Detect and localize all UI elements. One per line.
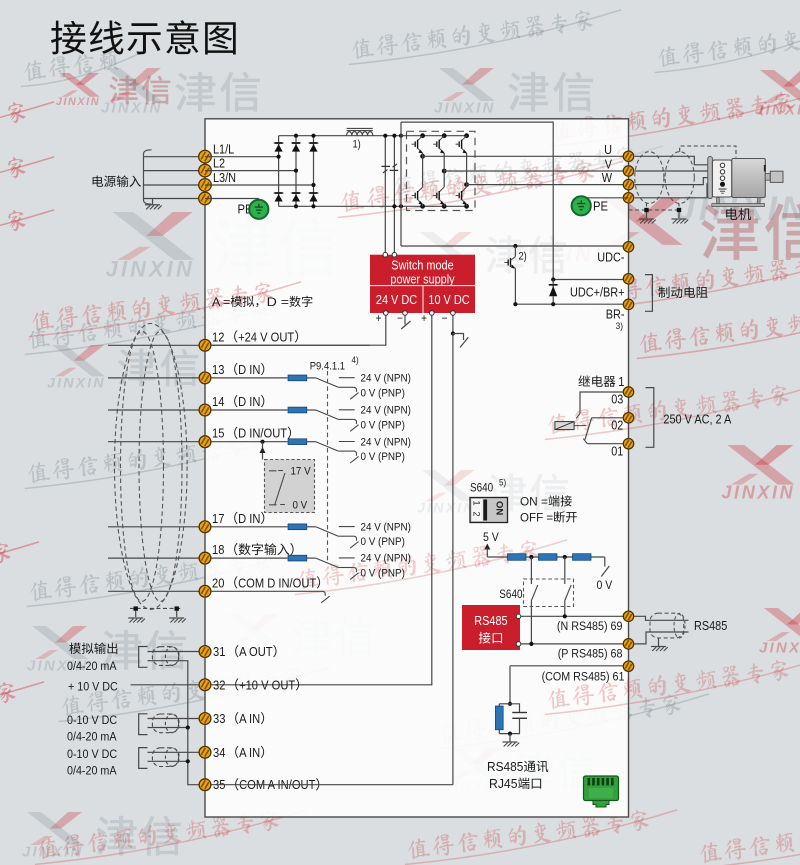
- svg-text:P9.4.1.1: P9.4.1.1: [310, 361, 345, 373]
- svg-text:12: 12: [212, 329, 224, 344]
- svg-text:0 V: 0 V: [293, 500, 308, 512]
- svg-text:A IN: A IN: [239, 745, 260, 760]
- svg-text:JINXIN: JINXIN: [759, 640, 800, 657]
- svg-text:U: U: [604, 143, 612, 157]
- svg-text:24 V (NPN): 24 V (NPN): [361, 373, 412, 385]
- svg-text:RS485: RS485: [474, 614, 507, 628]
- svg-text:D IN: D IN: [238, 394, 260, 409]
- svg-text:D =: D =: [267, 295, 289, 309]
- svg-text:31: 31: [213, 644, 225, 659]
- svg-text:−: −: [397, 312, 403, 325]
- svg-text:A =: A =: [212, 295, 230, 309]
- svg-text:0 V (PNP): 0 V (PNP): [361, 568, 406, 580]
- svg-text:32: 32: [213, 677, 225, 692]
- svg-text:13: 13: [212, 362, 224, 377]
- svg-text:24 V (NPN): 24 V (NPN): [361, 521, 412, 533]
- svg-text:(N RS485) 69: (N RS485) 69: [557, 619, 623, 633]
- svg-text:W: W: [602, 171, 612, 185]
- svg-text:0 V (PNP): 0 V (PNP): [361, 419, 406, 431]
- svg-text:PE: PE: [593, 198, 608, 213]
- svg-text:V: V: [605, 157, 613, 171]
- svg-text:BR-: BR-: [606, 308, 625, 322]
- svg-text:JINXIN: JINXIN: [417, 500, 475, 516]
- svg-text:03: 03: [611, 393, 623, 407]
- svg-text:(COM RS485) 61: (COM RS485) 61: [542, 670, 625, 684]
- svg-text:01: 01: [611, 444, 623, 458]
- svg-text:JINXIN: JINXIN: [101, 100, 163, 117]
- svg-text:0/4-20 mA: 0/4-20 mA: [67, 764, 117, 778]
- svg-text:1: 1: [618, 375, 624, 389]
- svg-text:15: 15: [212, 426, 224, 441]
- svg-text:1): 1): [353, 139, 361, 151]
- svg-text:ON =: ON =: [520, 495, 548, 509]
- svg-text:18: 18: [212, 542, 224, 557]
- svg-text:D IN/OUT: D IN/OUT: [238, 426, 287, 441]
- svg-text:5 V: 5 V: [483, 530, 500, 544]
- svg-text:+ 10 V DC: + 10 V DC: [68, 680, 118, 694]
- svg-text:+: +: [421, 312, 427, 325]
- svg-text:−: −: [442, 312, 448, 325]
- svg-text:ON: ON: [494, 501, 505, 515]
- svg-text:power supply: power supply: [390, 273, 455, 287]
- svg-text:0-10 V DC: 0-10 V DC: [67, 747, 117, 761]
- svg-text:250 V AC, 2 A: 250 V AC, 2 A: [663, 412, 731, 426]
- svg-text:UDC-: UDC-: [597, 251, 624, 265]
- svg-text:5): 5): [499, 478, 506, 488]
- svg-text:L2: L2: [213, 157, 225, 171]
- svg-text:34: 34: [213, 745, 225, 760]
- svg-text:JINXIN: JINXIN: [22, 844, 84, 861]
- svg-text:0 V: 0 V: [597, 578, 614, 592]
- svg-text:14: 14: [212, 394, 224, 409]
- svg-text:D IN: D IN: [238, 511, 260, 526]
- svg-text:JINXIN: JINXIN: [721, 482, 795, 502]
- svg-text:2): 2): [519, 251, 527, 263]
- svg-text:RS485: RS485: [487, 760, 523, 774]
- svg-text:+10 V OUT: +10 V OUT: [239, 677, 295, 692]
- svg-text:OFF =: OFF =: [520, 511, 553, 525]
- svg-text:24 V DC: 24 V DC: [376, 293, 417, 307]
- svg-text:−: −: [280, 500, 286, 512]
- svg-text:D IN: D IN: [238, 362, 260, 377]
- svg-text:0/4-20 mA: 0/4-20 mA: [67, 730, 117, 744]
- svg-text:17: 17: [212, 511, 224, 526]
- svg-text:24 V (NPN): 24 V (NPN): [361, 405, 412, 417]
- svg-text:S640: S640: [470, 483, 493, 495]
- svg-text:A IN: A IN: [239, 711, 260, 726]
- svg-text:COM D IN/OUT: COM D IN/OUT: [238, 575, 316, 590]
- svg-text:20: 20: [212, 575, 224, 590]
- svg-text:24 V (NPN): 24 V (NPN): [361, 553, 412, 565]
- svg-text:UDC+/BR+: UDC+/BR+: [570, 286, 625, 300]
- svg-text:24 V (NPN): 24 V (NPN): [361, 436, 412, 448]
- svg-text:0-10 V DC: 0-10 V DC: [67, 713, 117, 727]
- svg-text:JINXIN: JINXIN: [56, 96, 100, 108]
- svg-text:2: 2: [472, 512, 482, 517]
- svg-text:L1/L: L1/L: [213, 143, 234, 157]
- svg-text:−: −: [278, 466, 284, 478]
- svg-text:JINXIN: JINXIN: [106, 257, 195, 282]
- svg-text:0 V (PNP): 0 V (PNP): [361, 451, 406, 463]
- svg-text:0 V (PNP): 0 V (PNP): [361, 536, 406, 548]
- svg-text:JINXIN: JINXIN: [434, 100, 496, 117]
- svg-text:RJ45: RJ45: [489, 777, 518, 791]
- svg-text:17 V: 17 V: [291, 466, 311, 478]
- svg-text:+: +: [376, 312, 382, 325]
- svg-text:4): 4): [352, 355, 359, 365]
- svg-text:RS485: RS485: [694, 619, 727, 633]
- svg-text:1: 1: [472, 501, 482, 506]
- svg-text:L3/N: L3/N: [213, 171, 236, 185]
- svg-text:10 V DC: 10 V DC: [428, 293, 469, 307]
- svg-text:A OUT: A OUT: [239, 644, 273, 659]
- svg-text:33: 33: [213, 711, 225, 726]
- svg-text:JINXIN: JINXIN: [47, 375, 105, 391]
- svg-text:JINXIN: JINXIN: [755, 102, 800, 119]
- svg-text:S640: S640: [499, 589, 522, 601]
- svg-text:0 V (PNP): 0 V (PNP): [361, 387, 406, 399]
- svg-text:3): 3): [616, 321, 623, 332]
- svg-text:+24 V OUT: +24 V OUT: [238, 329, 294, 344]
- svg-text:(P RS485) 68: (P RS485) 68: [558, 647, 623, 661]
- svg-text:0/4-20 mA: 0/4-20 mA: [67, 659, 117, 673]
- svg-text:02: 02: [611, 419, 623, 433]
- svg-text:Switch mode: Switch mode: [391, 258, 453, 272]
